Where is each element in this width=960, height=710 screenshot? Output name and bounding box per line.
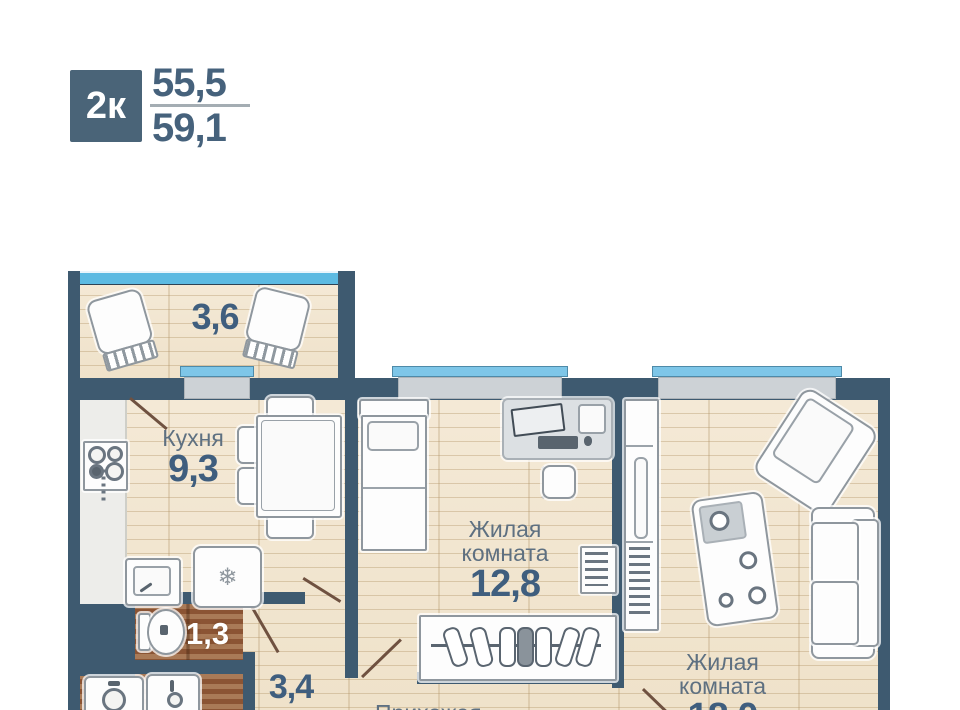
kitchen-label: Кухня 9,3 [128,426,258,490]
wall-bathroom-right [243,674,255,710]
living1-label: Жилая комната 12,8 [415,517,595,605]
area-total-value: 55,5 [152,63,262,103]
balcony-area-label: 3,6 [160,298,270,336]
floor-plan-screenshot: 2к 55,5 59,1 [0,0,960,710]
wardrobe-column [624,399,659,631]
living2-label: Жилая комната 18,0 [640,650,805,710]
wall-right-exterior [878,397,890,710]
washing-machine [84,676,144,710]
wall-kitchen-room1 [345,378,358,678]
bathroom-sink [146,674,200,710]
kitchen-area: 9,3 [128,450,258,490]
stove [83,441,128,491]
living1-name-line1: Жилая [415,517,595,541]
kitchen-window-sill [184,377,250,399]
wall-wc-bathroom [80,660,255,674]
living2-name-line2: комната [640,674,805,698]
room2-window [652,366,842,377]
living1-name-line2: комната [415,541,595,565]
kitchen-name: Кухня [128,426,258,450]
entry-name-label: Прихожая [375,701,505,710]
kitchen-sink [125,558,181,606]
office-chair [534,459,582,507]
fridge: ❄ [193,546,262,608]
kitchen-window [180,366,254,377]
area-living-value: 59,1 [152,108,262,148]
hall-area-label: 3,4 [258,670,324,706]
living2-area: 18,0 [640,698,805,710]
apartment-type-badge: 2к [70,70,142,142]
dining-table [256,415,342,518]
living2-name-line1: Жилая [640,650,805,674]
wc-area-label: 1,3 [186,616,229,652]
room1-window [392,366,568,377]
balcony-glazing [80,271,338,285]
kitchen-counter-corner [80,556,127,604]
room1-window-sill [398,377,562,399]
wall-left-exterior [68,271,80,710]
apartment-type-label: 2к [86,85,126,128]
closet-with-hangers [419,615,617,681]
toilet [138,606,184,654]
desk [502,398,613,460]
living1-area: 12,8 [415,565,595,605]
snowflake-icon: ❄ [217,563,237,592]
sofa [809,507,878,657]
